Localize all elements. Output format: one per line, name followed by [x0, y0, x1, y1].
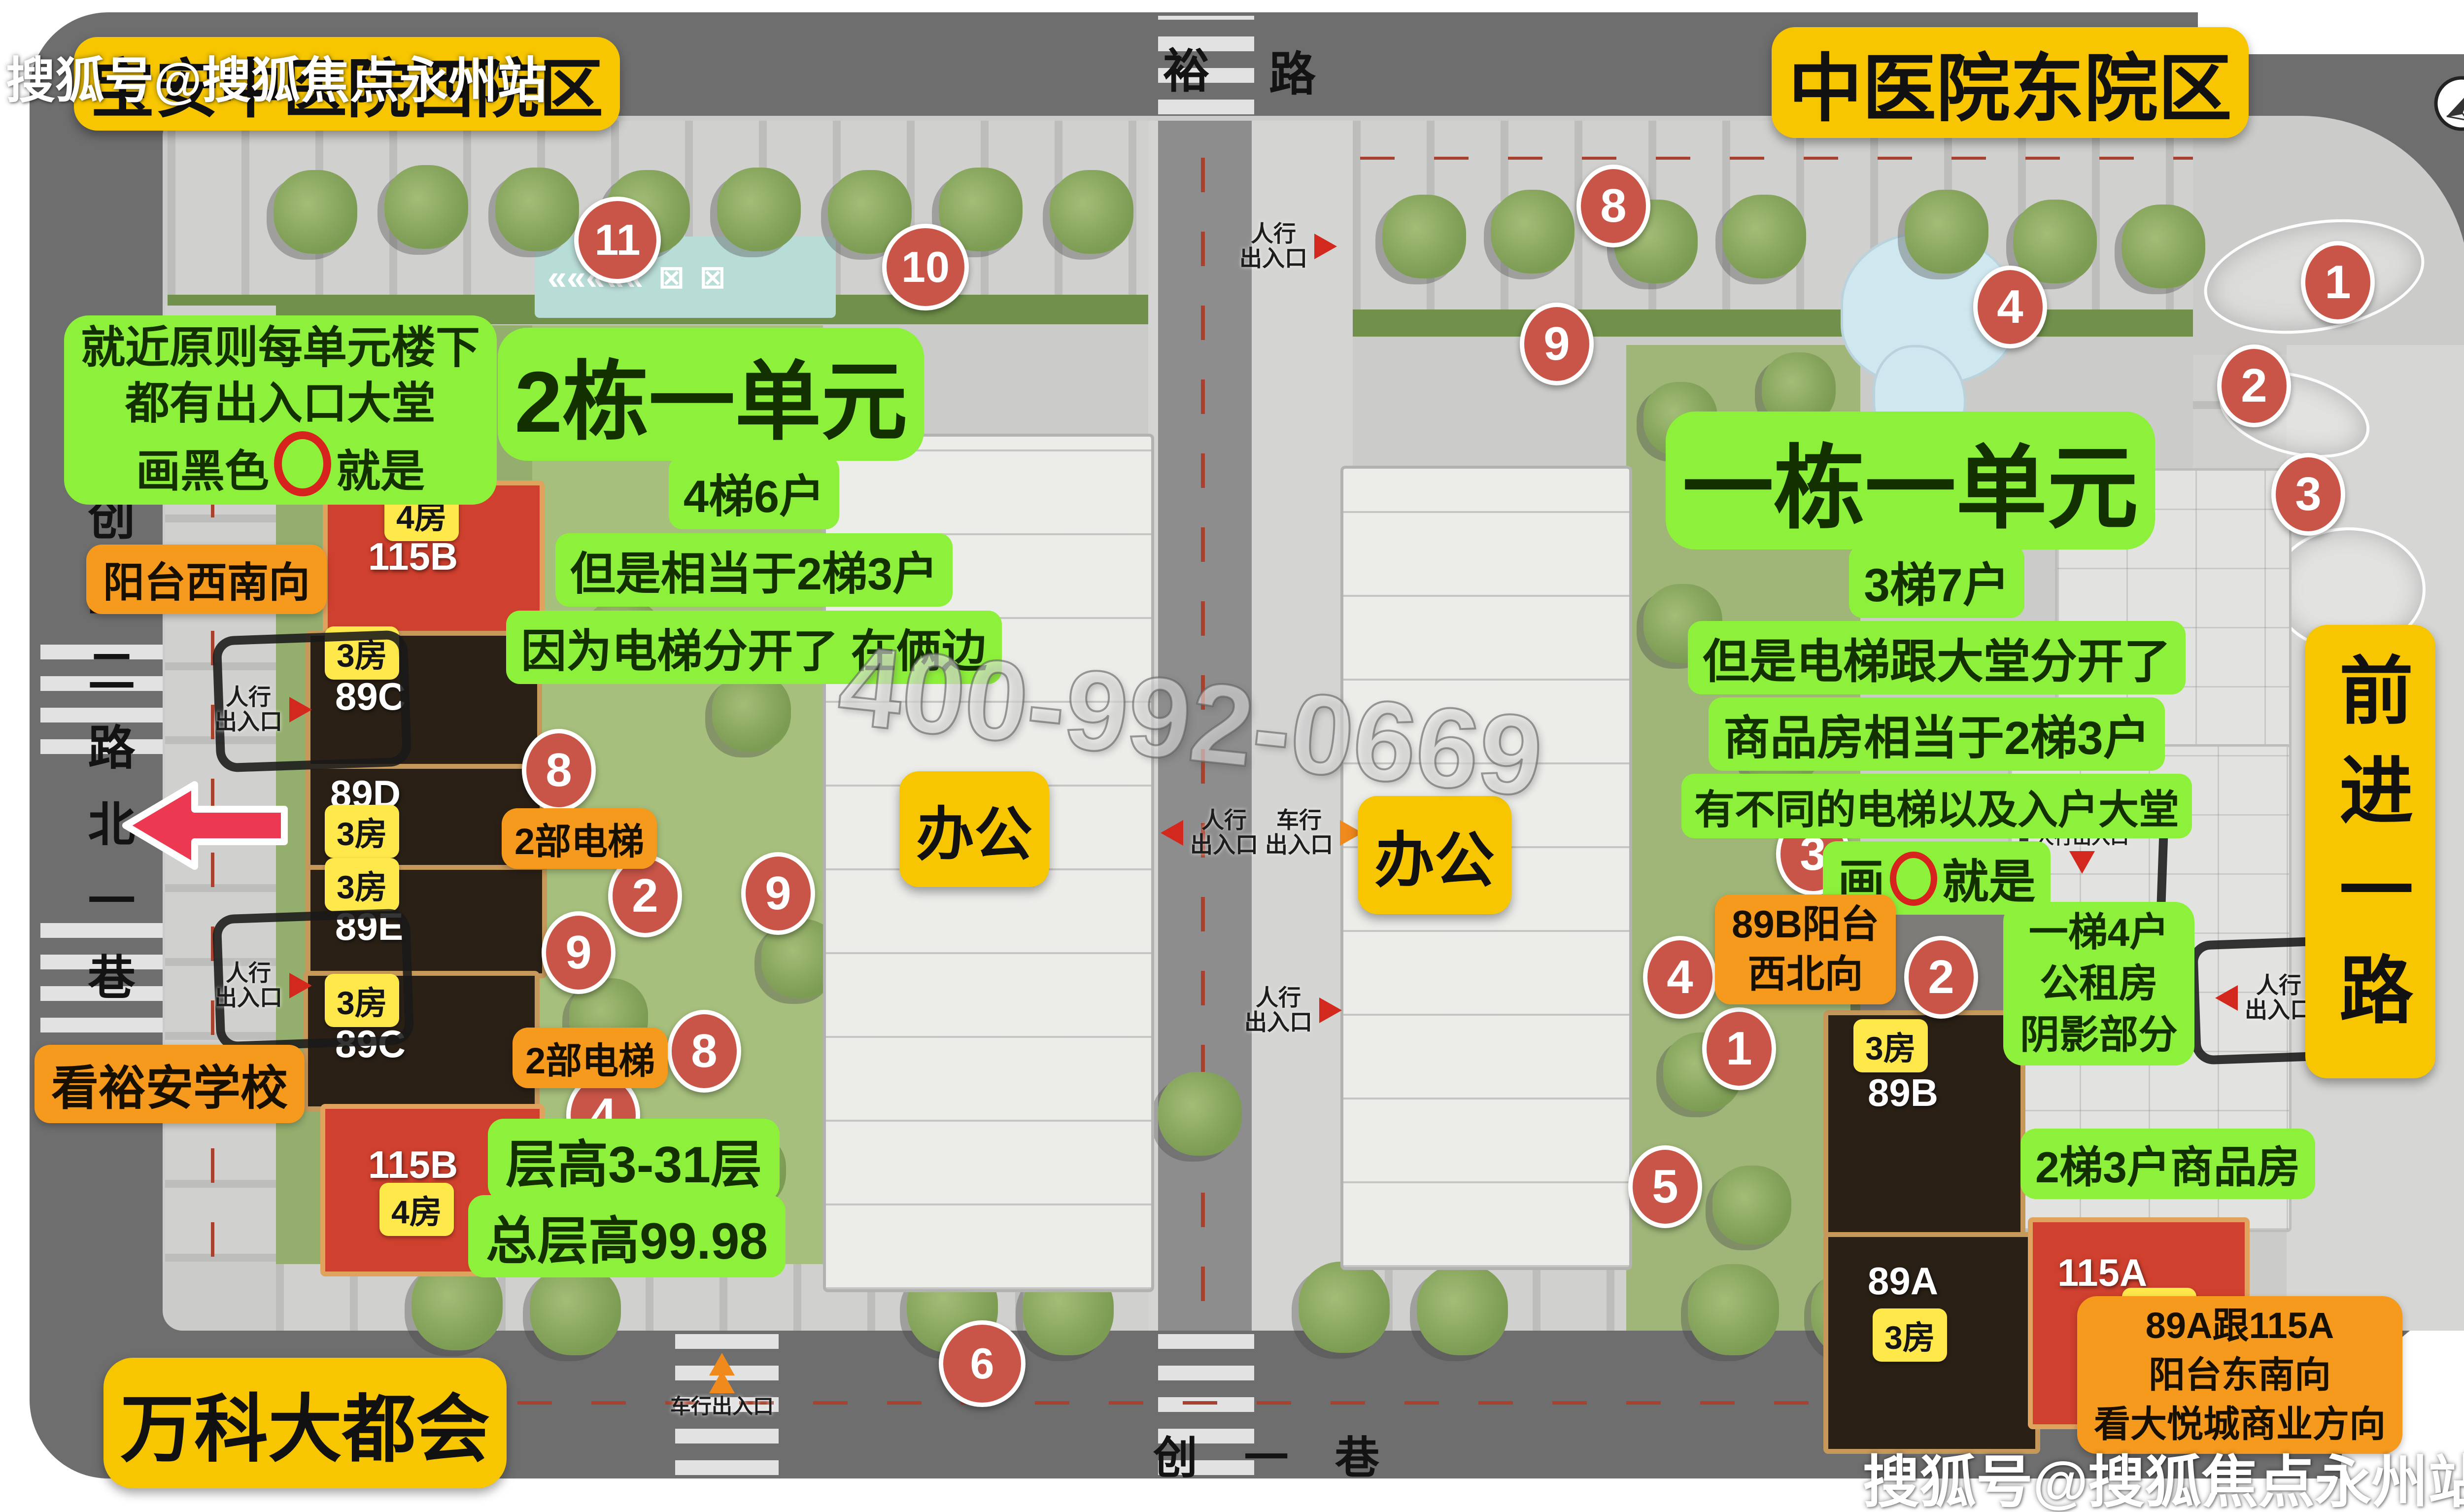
marker-2-east-mid: 2 [1904, 936, 1978, 1019]
marker-1-east-top: 1 [2301, 241, 2375, 324]
hedge-ne [1353, 309, 2193, 337]
marker-11: 11 [574, 197, 661, 283]
note-89b-balcony: 89B阳台 西北向 [1715, 894, 1896, 1004]
marker-1-east-mid: 1 [1702, 1007, 1776, 1090]
unit-type-chip: 3房 [1853, 1019, 1928, 1072]
tree-icon [1158, 1072, 1242, 1156]
tree-icon [2122, 205, 2205, 288]
vehicle-arrow-icon [709, 1371, 735, 1393]
pedestrian-entrance-east-right: 人行出入口 [2215, 973, 2313, 1022]
pedestrian-entrance-top-central: 人行出入口 [1239, 222, 1337, 271]
tree-icon [1722, 195, 1806, 278]
unit-type-chip: 3房 [325, 805, 399, 858]
note-elevators-lower: 2部电梯 [513, 1028, 668, 1088]
tree-icon [274, 170, 357, 254]
road-name-bottom: 创一巷 [1153, 1422, 1426, 1486]
marker-4-east-mid: 4 [1643, 936, 1717, 1019]
tree-icon [530, 1264, 621, 1355]
tree-icon [1299, 1262, 1390, 1353]
tree-icon [384, 165, 468, 249]
entrance-arrow-icon [1161, 820, 1183, 846]
note-east-unit-title: 一栋一单元 [1666, 412, 2155, 550]
road-name-top: 裕 [1163, 34, 1210, 101]
tree-icon [1417, 1264, 1508, 1355]
marker-8-west-lower: 8 [667, 1010, 741, 1093]
tree-icon [1382, 195, 1466, 278]
marker-6: 6 [939, 1320, 1026, 1407]
tree-icon [495, 168, 579, 251]
entrance-arrow-icon [2215, 985, 2238, 1011]
entrance-arrow-icon [1314, 234, 1337, 259]
note-total-height: 总层高99.98 [468, 1195, 786, 1277]
watermark-sohu-bottom: 搜狐号@搜狐焦点永州站 [1863, 1437, 2464, 1512]
compass-icon [2432, 74, 2464, 136]
tree-icon [712, 673, 791, 752]
entrance-arrow-icon [1319, 997, 1342, 1023]
tree-icon [1688, 1264, 1779, 1355]
note-qianjin-road: 前进一路 [2305, 625, 2435, 1078]
marker-10: 10 [882, 224, 969, 310]
note-rental: 一梯4户 公租房 阴影部分 [2003, 902, 2194, 1065]
marker-9-west-right: 9 [741, 852, 815, 935]
unit-type-chip: 4房 [379, 1183, 454, 1236]
red-circle-icon [274, 431, 331, 496]
fire-lane-ne [1360, 157, 2193, 160]
marker-8-west-upper: 8 [522, 729, 596, 812]
office-label-west: 办公 [899, 771, 1049, 887]
red-circle-icon [1890, 852, 1937, 906]
pedestrian-entrance-west-lower: 人行出入口 [214, 961, 312, 1010]
note-line: 但是相当于2梯3户 [555, 533, 953, 607]
site-plan: ««««« ⊠ ⊠ [0, 0, 2464, 1512]
tree-icon [1712, 1166, 1791, 1244]
note-line: 有不同的电梯以及入户大堂 [1681, 774, 2192, 838]
note-line: 商品房相当于2梯3户 [1709, 697, 2165, 771]
note-115a-balcony: 89A跟115A 阳台东南向 看大悦城商业方向 [2077, 1296, 2402, 1454]
note-floors: 层高3-31层 [488, 1119, 780, 1201]
marker-2-east-top: 2 [2217, 344, 2291, 427]
unit-type-chip: 3房 [325, 858, 399, 911]
central-entrances-pair: 人行出入口 车行出入口 [1161, 808, 1383, 857]
note-elevators-upper: 2部电梯 [502, 808, 657, 869]
unit-type-chip: 3房 [1873, 1308, 1947, 1362]
note-balcony-southwest: 阳台西南向 [86, 545, 327, 614]
building-name: 115B [368, 1142, 458, 1187]
marker-3-east-top: 3 [2271, 453, 2345, 536]
note-commodity: 2梯3户商品房 [2020, 1129, 2315, 1199]
marker-5-east: 5 [1628, 1145, 1702, 1228]
pedestrian-entrance-lower-central: 人行出入口 [1244, 986, 1342, 1034]
marker-9-east: 9 [1520, 303, 1594, 385]
water-grate-icon: ⊠ [658, 259, 685, 296]
marker-9-west-left: 9 [542, 911, 616, 994]
vehicle-entrance-south: 车行出入口 [670, 1353, 774, 1417]
note-school-view: 看裕安学校 [34, 1045, 305, 1123]
building-name: 89A [1868, 1259, 1938, 1304]
title-east-campus: 中医院东院区 [1772, 27, 2249, 138]
note-east-unit-lines: 3梯7户 但是电梯跟大堂分开了 商品房相当于2梯3户 有不同的电梯以及入户大堂 … [1621, 545, 2252, 915]
entrance-arrow-icon [289, 973, 312, 998]
building-name: 115B [368, 534, 458, 579]
marker-4-east-top: 4 [1973, 266, 2047, 348]
note-line: 4梯6户 [669, 456, 839, 529]
building-name: 89B [1868, 1070, 1938, 1115]
pedestrian-entrance-west-upper: 人行出入口 [214, 685, 312, 734]
tree-icon [1050, 170, 1133, 254]
note-vanke-metropolis: 万科大都会 [103, 1358, 507, 1488]
note-line: 但是电梯跟大堂分开了 [1688, 621, 2186, 694]
tree-icon [1905, 190, 1988, 274]
note-west-unit-title: 2栋一单元 [498, 328, 924, 461]
tree-icon [717, 168, 801, 251]
road-name-top-suffix: 路 [1269, 36, 1316, 104]
note-line: 3梯7户 [1849, 545, 2024, 618]
note-near-rule: 就近原则每单元楼下 都有出入口大堂 画黑色就是 [64, 315, 497, 505]
marker-8-east: 8 [1576, 165, 1650, 247]
entrance-arrow-icon [289, 697, 312, 722]
water-grate-icon: ⊠ [699, 259, 726, 296]
west-direction-arrow [121, 779, 288, 875]
watermark-sohu-top: 搜狐号@搜狐焦点永州站 [6, 40, 547, 112]
tree-icon [1491, 190, 1574, 274]
